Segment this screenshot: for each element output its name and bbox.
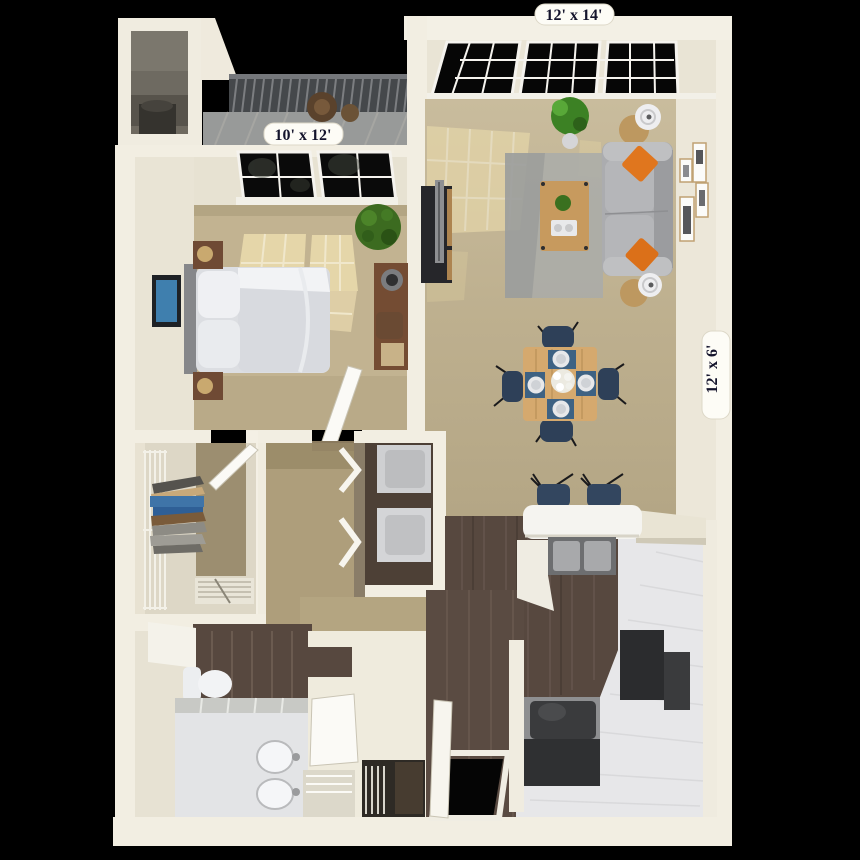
- svg-text:12' x 6': 12' x 6': [704, 345, 721, 394]
- svg-text:12' x 14': 12' x 14': [546, 7, 603, 24]
- svg-text:10' x 12': 10' x 12': [275, 127, 332, 144]
